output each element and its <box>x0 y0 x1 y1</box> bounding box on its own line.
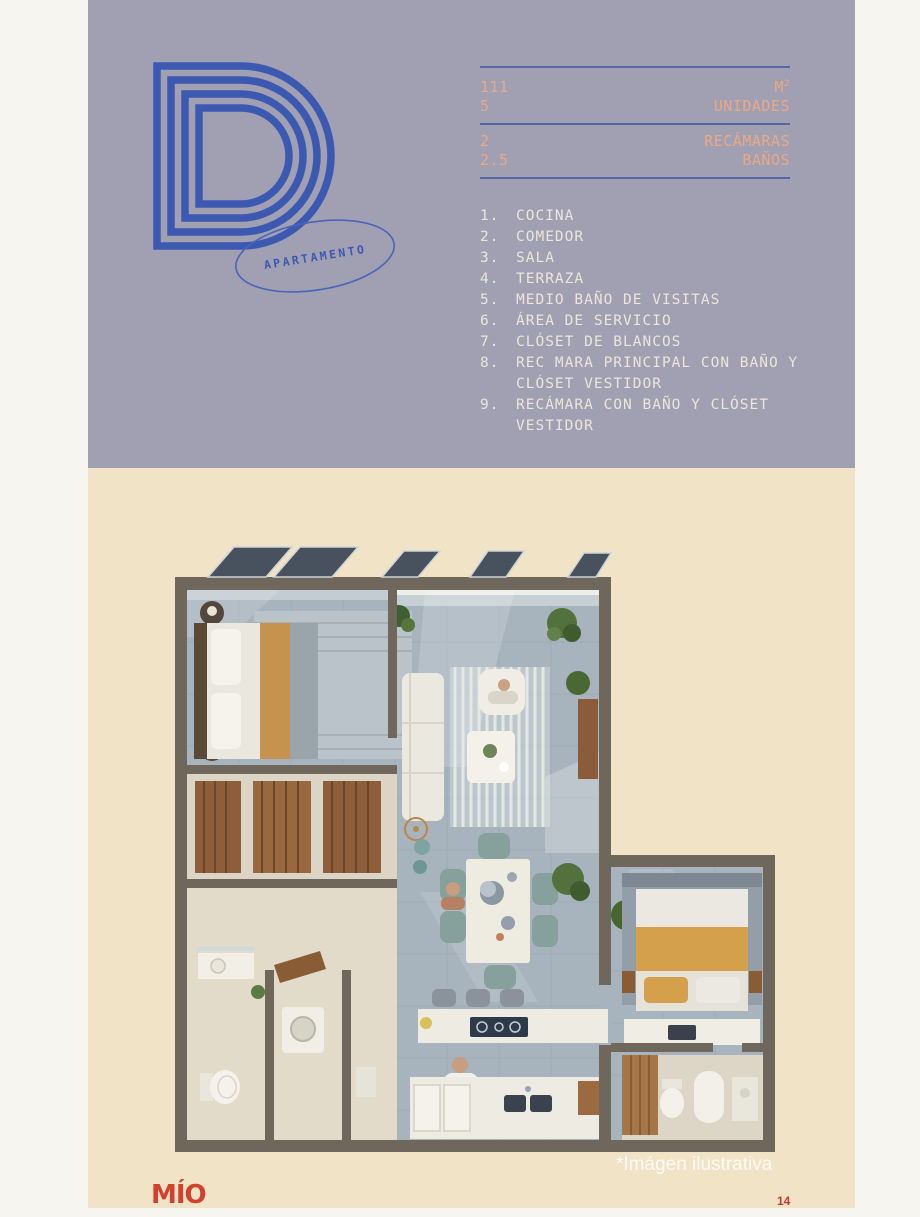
stat-row-unidades: 5 UNIDADES <box>480 97 790 116</box>
list-item: 5.MEDIO BAÑO DE VISITAS <box>480 290 810 311</box>
floorplan-panel: *Imágen ilustrativa MÍO 14 <box>88 468 855 1208</box>
bed-secondary <box>636 889 748 1011</box>
closet-wardrobes <box>195 781 381 873</box>
dining-table <box>466 859 530 963</box>
dining-chair <box>440 911 466 943</box>
shower-door <box>694 1071 724 1123</box>
apartment-d-logo: APARTAMENTO <box>153 62 403 294</box>
dining-chair <box>532 915 558 947</box>
toilet <box>660 1088 684 1118</box>
stat-row-m2: 111 M2 <box>480 75 790 97</box>
list-item: 7.CLÓSET DE BLANCOS <box>480 332 810 353</box>
floorplan-render <box>170 537 788 1163</box>
brochure-page: APARTAMENTO 111 M2 5 UNIDADES 2 RECÁMARA… <box>0 0 920 1217</box>
bed-master <box>194 623 318 759</box>
header-panel: APARTAMENTO 111 M2 5 UNIDADES 2 RECÁMARA… <box>88 0 855 468</box>
dining-chair <box>478 833 510 859</box>
person-dining <box>446 882 460 896</box>
stat-row-recamaras: 2 RECÁMARAS <box>480 132 790 151</box>
list-item: 3.SALA <box>480 248 810 269</box>
sink <box>530 1095 552 1112</box>
person-lounging <box>498 679 510 691</box>
list-item: 4.TERRAZA <box>480 269 810 290</box>
stat-value: 5 <box>480 97 490 116</box>
cutting-board <box>578 1081 602 1115</box>
list-item: 8.REC MARA PRINCIPAL CON BAÑO Y CLÓSET V… <box>480 353 810 395</box>
sofa <box>402 673 444 821</box>
stats-block-rooms: 2 RECÁMARAS 2.5 BAÑOS <box>480 123 790 177</box>
dining-chair <box>484 965 516 989</box>
laptop <box>668 1025 696 1040</box>
kitchen-counter <box>410 1077 608 1139</box>
master-bedroom <box>194 601 412 761</box>
stat-label: M2 <box>775 75 790 97</box>
stat-value: 2.5 <box>480 151 509 170</box>
stat-value: 111 <box>480 78 509 97</box>
list-item: 6.ÁREA DE SERVICIO <box>480 311 810 332</box>
tv-console <box>578 699 598 779</box>
bedroom-2 <box>622 873 762 1045</box>
stats-block-area: 111 M2 5 UNIDADES <box>480 66 790 123</box>
mio-brand-logo: MÍO <box>151 1180 206 1210</box>
sink <box>504 1095 526 1112</box>
bar-stool <box>466 989 490 1007</box>
image-caption: *Imágen ilustrativa <box>616 1154 772 1176</box>
stat-value: 2 <box>480 132 490 151</box>
stat-label: UNIDADES <box>714 97 790 116</box>
plant <box>566 671 590 695</box>
badge-label: APARTAMENTO <box>263 242 368 272</box>
list-item: 2.COMEDOR <box>480 227 810 248</box>
clerestory-windows <box>208 547 611 577</box>
bar-stool <box>432 989 456 1007</box>
stat-label: RECÁMARAS <box>704 132 790 151</box>
vanity <box>732 1077 758 1121</box>
stat-row-banos: 2.5 BAÑOS <box>480 151 790 170</box>
bar-stool <box>500 989 524 1007</box>
list-item: 9.RECÁMARA CON BAÑO Y CLÓSET VESTIDOR <box>480 395 810 437</box>
stats-table: 111 M2 5 UNIDADES 2 RECÁMARAS 2.5 BAÑOS <box>480 66 790 179</box>
stat-label: BAÑOS <box>742 151 790 170</box>
plant <box>251 985 265 999</box>
page-number: 14 <box>777 1194 790 1208</box>
appliance <box>444 1085 470 1131</box>
appliance <box>414 1085 440 1131</box>
person-cooking <box>452 1057 468 1073</box>
feature-list: 1.COCINA 2.COMEDOR 3.SALA 4.TERRAZA 5.ME… <box>480 206 810 437</box>
vanity <box>198 953 254 979</box>
apartment-badge: APARTAMENTO <box>231 210 400 294</box>
list-item: 1.COCINA <box>480 206 810 227</box>
d-letter-outline <box>157 66 331 246</box>
